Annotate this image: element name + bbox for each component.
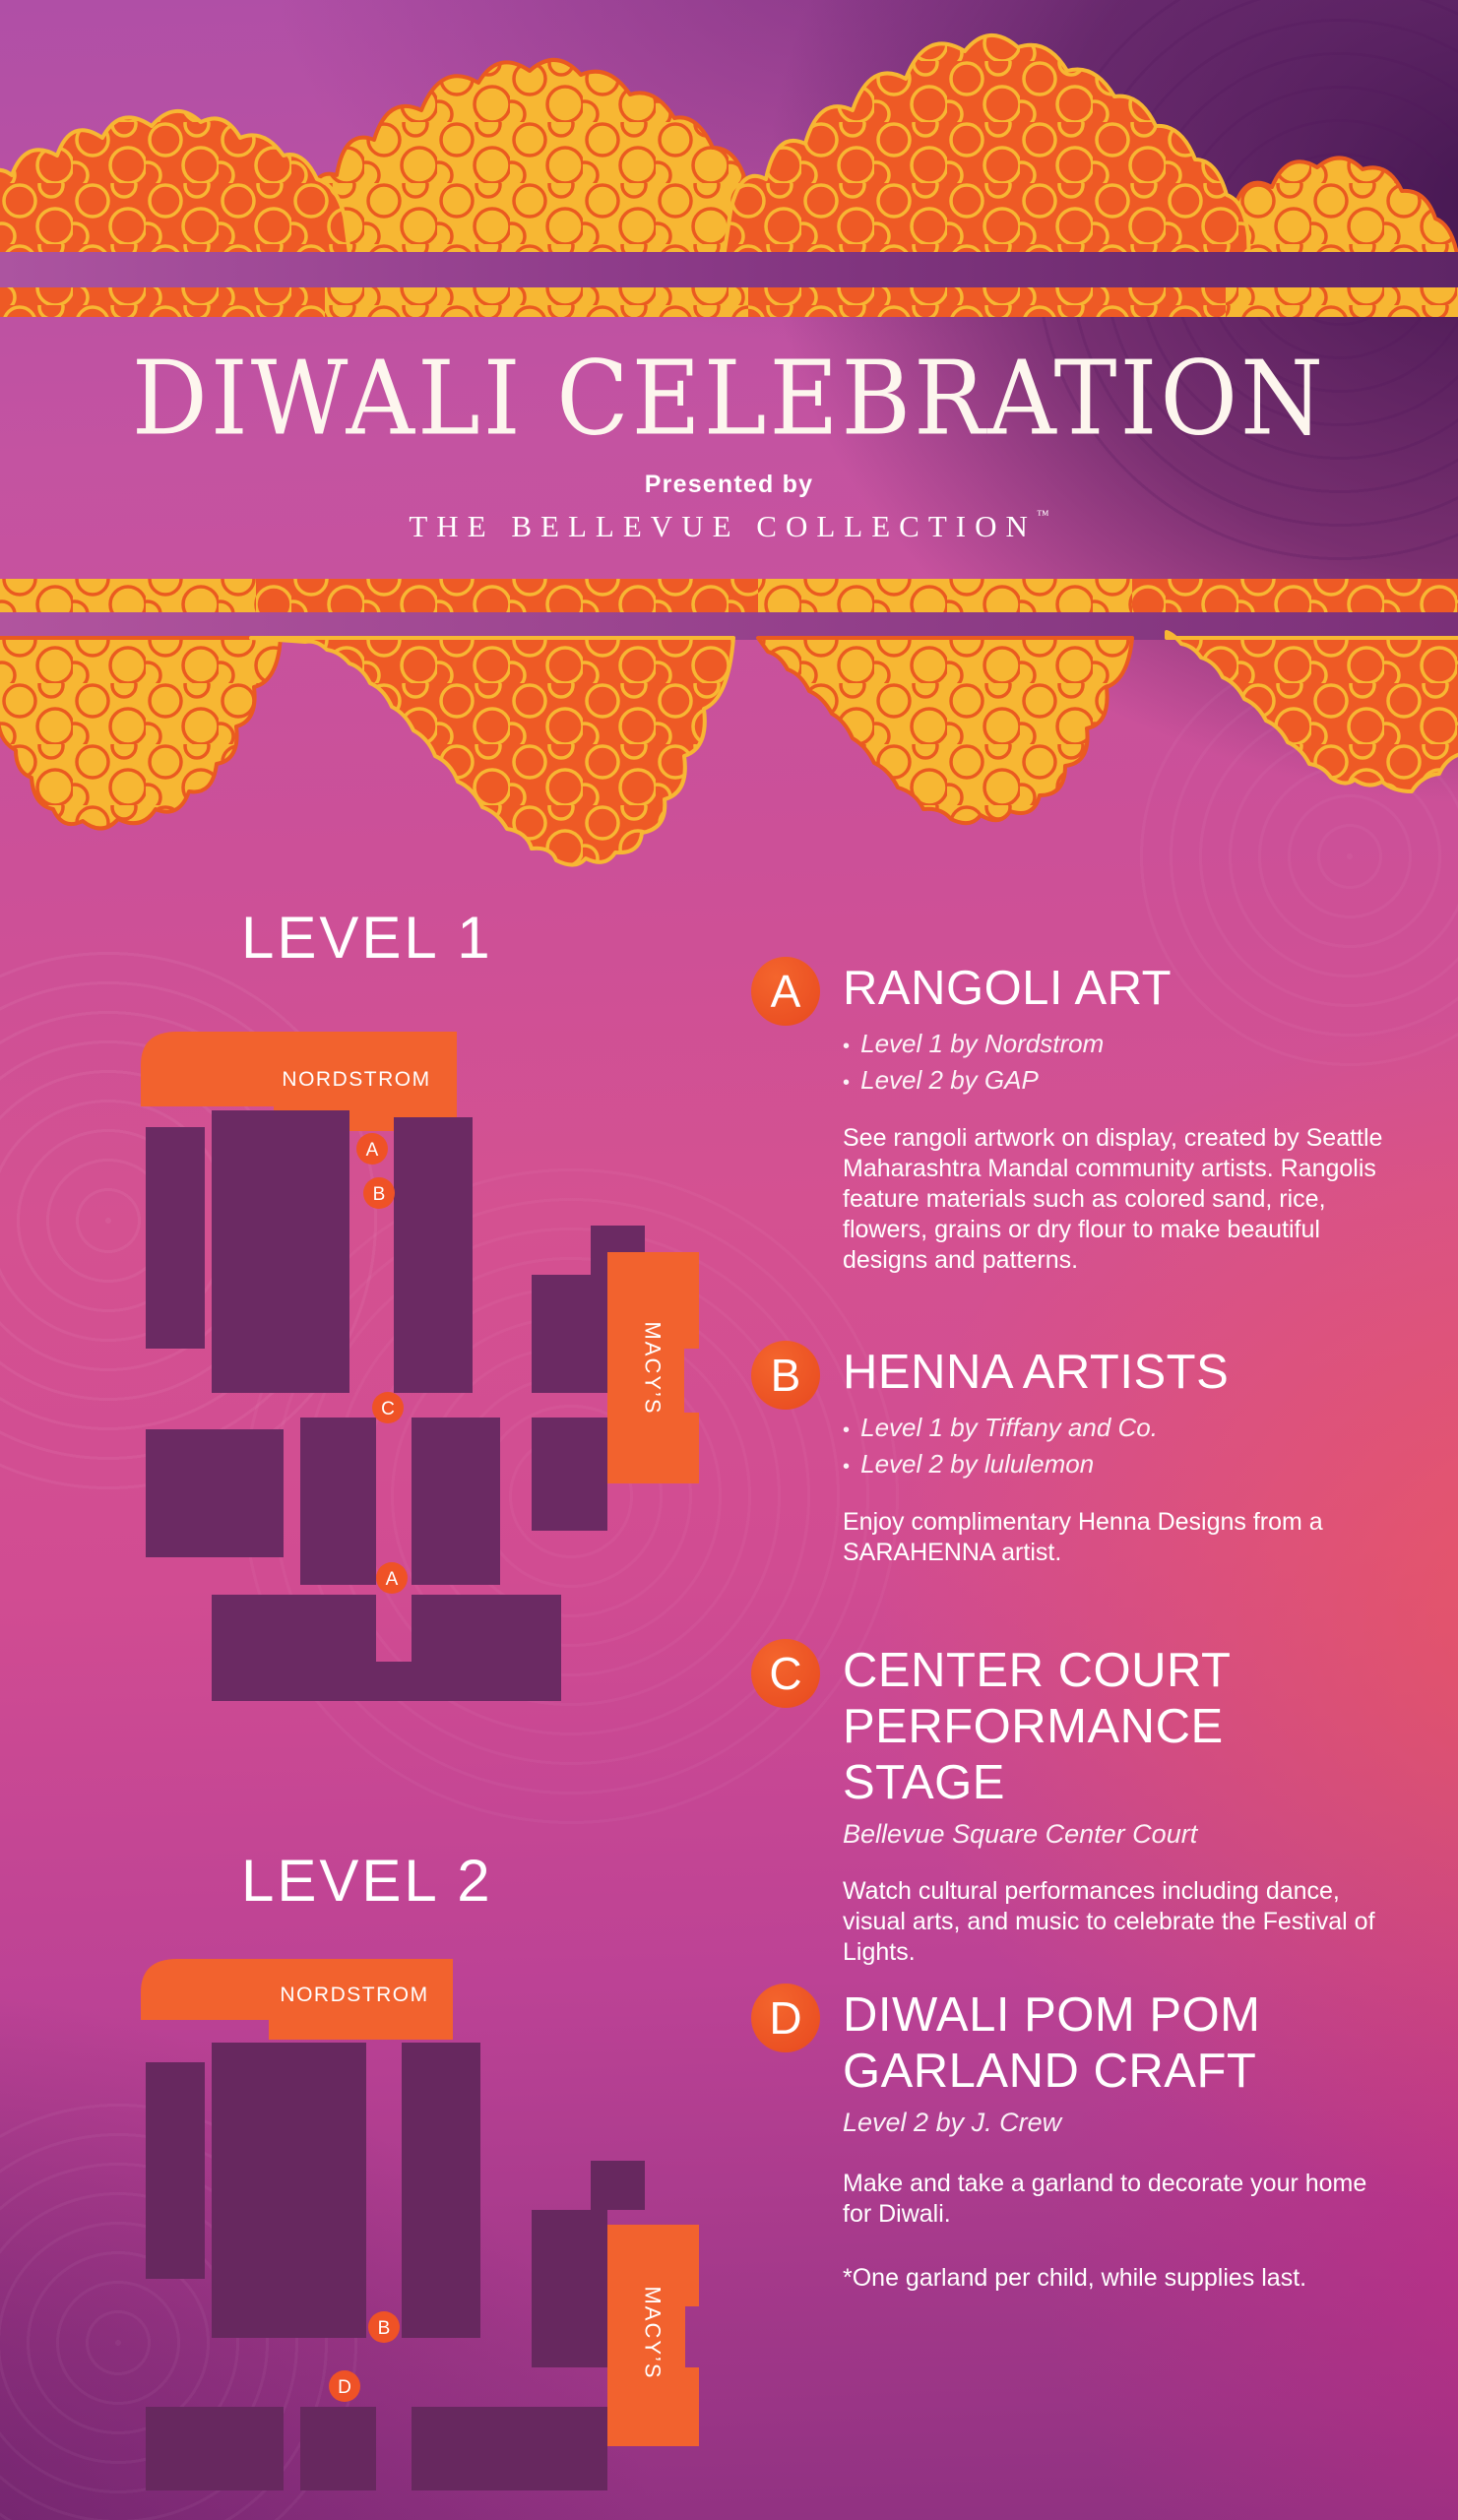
svg-text:A: A: [386, 1569, 399, 1590]
legend-section-center-court-stage: C CENTER COURT PERFORMANCE STAGE Bellevu…: [751, 1639, 1409, 1992]
map-marker-c: C: [372, 1392, 404, 1423]
page-title: DIWALI CELEBRATION: [0, 346, 1458, 453]
map-marker-b: B: [363, 1177, 395, 1209]
map-marker-b: B: [368, 2311, 400, 2343]
location-line: Level 1 by Tiffany and Co.: [843, 1411, 1409, 1447]
legend-marker-d: D: [751, 1984, 820, 2052]
marigold-garland-mid: [0, 561, 1458, 868]
ribbon-band-top: [0, 252, 1458, 287]
legend-marker-c: C: [751, 1639, 820, 1708]
marigold-garland-top: [0, 0, 1458, 317]
legend-title: CENTER COURT PERFORMANCE STAGE: [843, 1643, 1399, 1811]
svg-text:B: B: [378, 2318, 391, 2339]
header: DIWALI CELEBRATION Presented by THE BELL…: [0, 346, 1458, 544]
legend-locations: Level 1 by Nordstrom Level 2 by GAP: [843, 1027, 1409, 1100]
level-1-heading: LEVEL 1: [241, 904, 493, 972]
level-2-nordstrom-anchor: NORDSTROM: [141, 1959, 453, 2040]
store-label: NORDSTROM: [282, 1068, 430, 1091]
legend-subtitle: Level 2 by J. Crew: [843, 2106, 1409, 2139]
brand-name: THE BELLEVUE COLLECTION™: [0, 507, 1458, 544]
legend-section-rangoli-art: A RANGOLI ART Level 1 by Nordstrom Level…: [751, 957, 1409, 1300]
legend-marker-a: A: [751, 957, 820, 1026]
legend-description: See rangoli artwork on display, created …: [843, 1123, 1402, 1276]
presented-by-label: Presented by: [0, 471, 1458, 499]
location-line: Level 2 by GAP: [843, 1063, 1409, 1100]
legend-section-garland-craft: D DIWALI POM POM GARLAND CRAFT Level 2 b…: [751, 1984, 1409, 2318]
ribbon-band-mid: [0, 612, 1458, 640]
map-marker-a2: A: [376, 1562, 408, 1594]
store-label: MACY’S: [641, 2286, 666, 2379]
legend-note: *One garland per child, while supplies l…: [843, 2263, 1402, 2294]
legend-description: Enjoy complimentary Henna Designs from a…: [843, 1507, 1402, 1568]
store-label: NORDSTROM: [280, 1984, 428, 2006]
level-1-map: NORDSTROM MACY’S A B C A: [98, 1024, 729, 1703]
brand-text: THE BELLEVUE COLLECTION: [409, 509, 1036, 543]
legend-subtitle: Bellevue Square Center Court: [843, 1817, 1409, 1851]
diwali-poster: DIWALI CELEBRATION Presented by THE BELL…: [0, 0, 1458, 2520]
level-2-macys-anchor: MACY’S: [607, 2225, 699, 2446]
legend-locations: Level 1 by Tiffany and Co. Level 2 by lu…: [843, 1411, 1409, 1483]
legend-title: RANGOLI ART: [843, 961, 1399, 1017]
svg-text:D: D: [338, 2377, 351, 2398]
level-2-mall-blocks: [146, 2043, 645, 2490]
level-2-map: NORDSTROM MACY’S B D: [98, 1944, 729, 2520]
svg-text:B: B: [373, 1184, 386, 1205]
store-label: MACY’S: [641, 1321, 666, 1415]
level-1-macys-anchor: MACY’S: [607, 1252, 699, 1483]
legend-description: Make and take a garland to decorate your…: [843, 2169, 1402, 2230]
legend-title: HENNA ARTISTS: [843, 1345, 1399, 1401]
map-marker-d: D: [329, 2370, 360, 2402]
map-marker-a1: A: [356, 1133, 388, 1165]
legend-title: DIWALI POM POM GARLAND CRAFT: [843, 1987, 1399, 2100]
trademark-symbol: ™: [1037, 507, 1049, 522]
location-line: Level 1 by Nordstrom: [843, 1027, 1409, 1063]
location-line: Level 2 by lululemon: [843, 1447, 1409, 1483]
legend-marker-b: B: [751, 1341, 820, 1410]
level-2-heading: LEVEL 2: [241, 1847, 493, 1915]
svg-text:A: A: [366, 1140, 379, 1161]
svg-text:C: C: [381, 1399, 395, 1419]
legend-section-henna-artists: B HENNA ARTISTS Level 1 by Tiffany and C…: [751, 1341, 1409, 1593]
legend-description: Watch cultural performances including da…: [843, 1876, 1409, 1968]
